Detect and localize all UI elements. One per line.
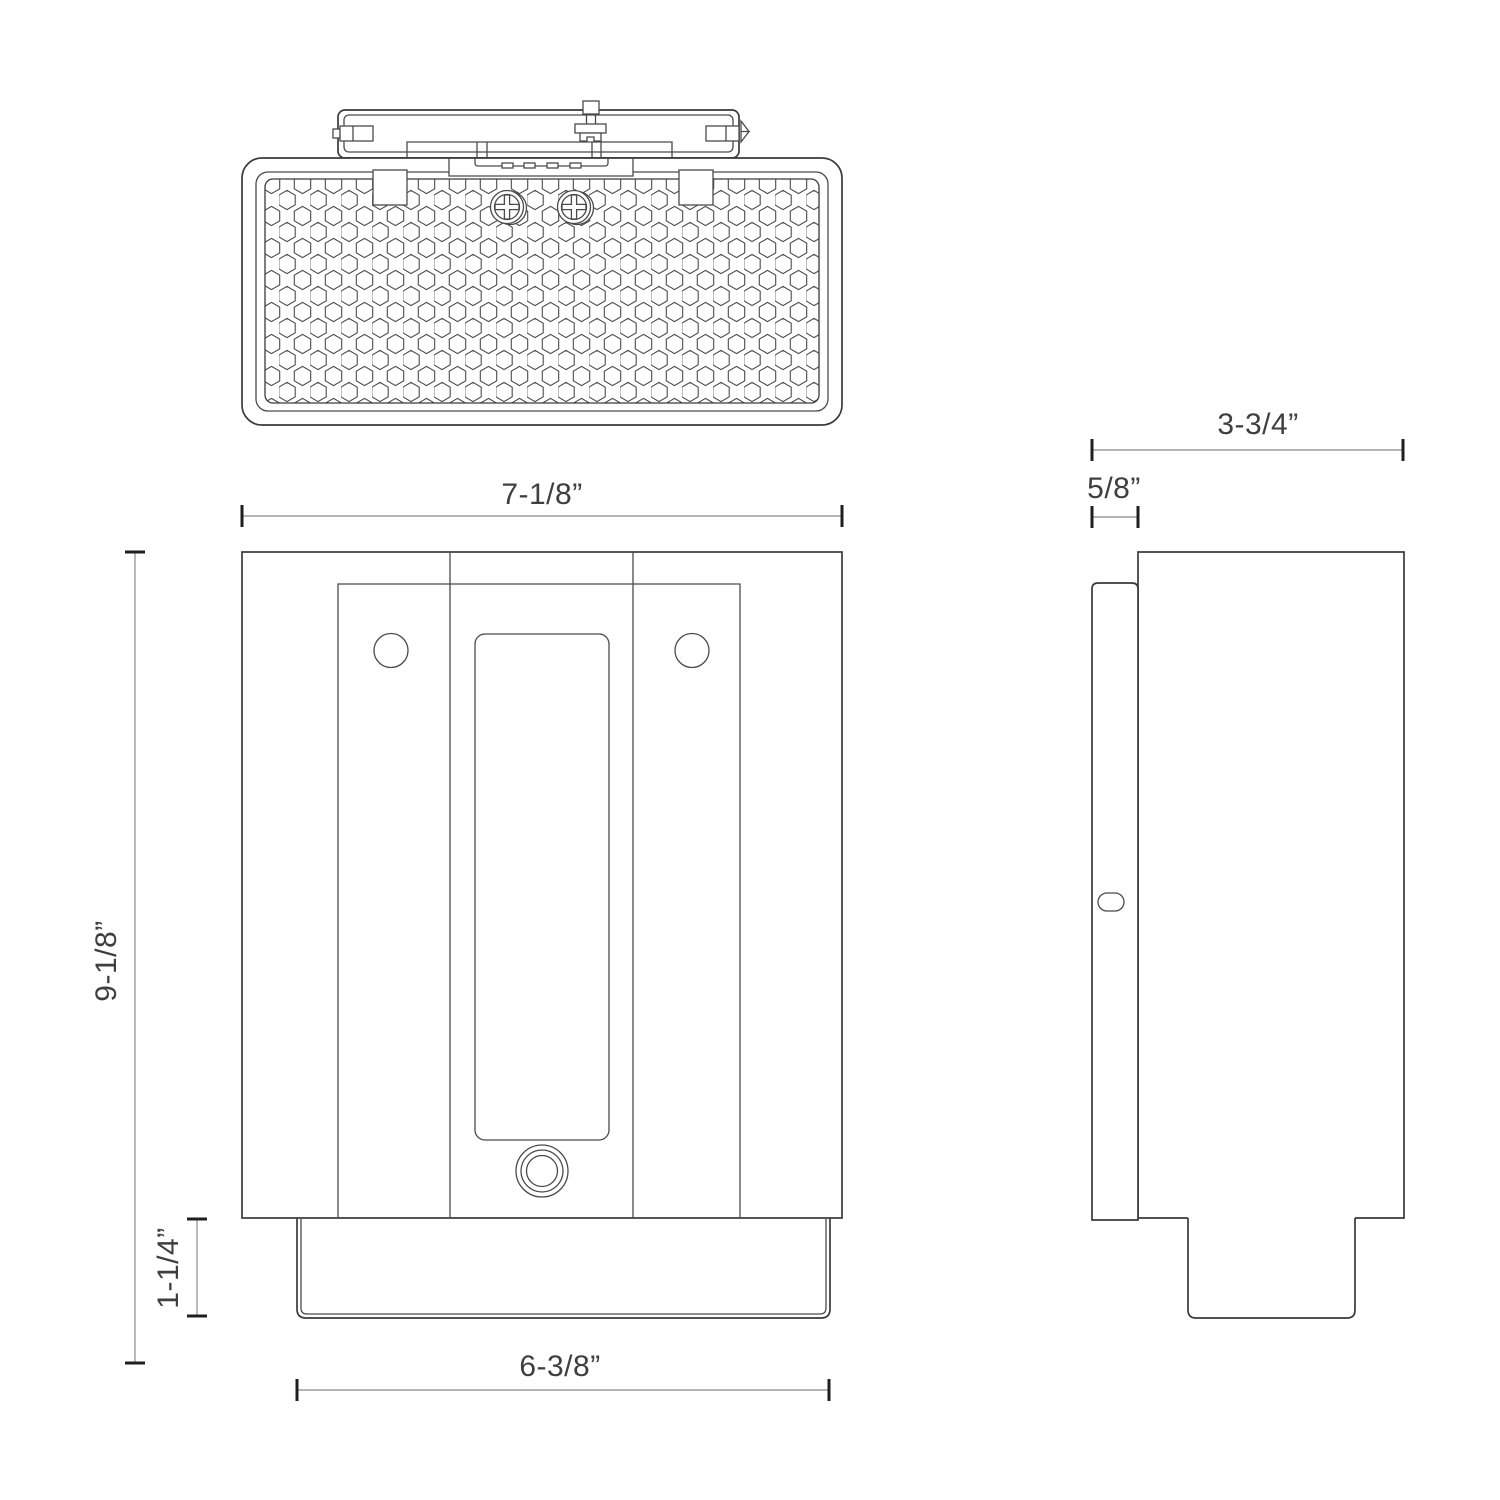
dim-base-width: 6-3/8”	[297, 1350, 829, 1401]
sconce-dimension-drawing: 7-1/8” 9-1/8” 1-1/4” 6-3/8” 3-3/4” 5/8”	[0, 0, 1500, 1500]
dim-base-height-label: 1-1/4”	[152, 1227, 185, 1308]
bracket-recess-outline	[407, 142, 672, 157]
side-body-outline	[1138, 552, 1404, 1218]
dim-front-width-label: 7-1/8”	[501, 478, 582, 511]
technical-drawing-page: 7-1/8” 9-1/8” 1-1/4” 6-3/8” 3-3/4” 5/8”	[0, 0, 1500, 1500]
dim-side-depth-label: 3-3/4”	[1217, 408, 1298, 441]
screw-right	[558, 191, 594, 225]
top-view	[242, 101, 842, 425]
bracket-center-post	[575, 101, 606, 141]
tab-cutout-right	[679, 170, 713, 205]
bracket-clip-left	[333, 126, 373, 141]
bracket-wing-nut	[741, 121, 749, 142]
top-recess	[449, 158, 633, 176]
bracket-recess-ticks	[477, 142, 601, 157]
dim-overall-height-label: 9-1/8”	[90, 920, 123, 1001]
side-base-extension	[1188, 1218, 1355, 1318]
bracket-bar	[338, 110, 739, 158]
tab-cutout-left	[373, 170, 407, 205]
dim-front-width: 7-1/8”	[242, 478, 842, 527]
dim-plate-depth: 5/8”	[1087, 472, 1141, 528]
dim-overall-height: 9-1/8”	[90, 552, 145, 1363]
dim-plate-depth-label: 5/8”	[1087, 472, 1141, 505]
side-wall-plate	[1092, 583, 1138, 1220]
front-base-extension	[297, 1218, 830, 1318]
side-view	[1092, 552, 1404, 1318]
dim-base-height: 1-1/4”	[152, 1219, 207, 1316]
mounting-bracket	[333, 101, 749, 158]
dim-side-depth: 3-3/4”	[1092, 408, 1403, 461]
screw-left	[491, 191, 527, 225]
front-body-outline	[242, 552, 842, 1218]
dim-base-width-label: 6-3/8”	[519, 1350, 600, 1383]
bracket-bar-inner	[344, 115, 733, 152]
perforated-panel	[265, 179, 819, 403]
front-view	[242, 552, 842, 1318]
bracket-clip-right	[706, 121, 749, 142]
